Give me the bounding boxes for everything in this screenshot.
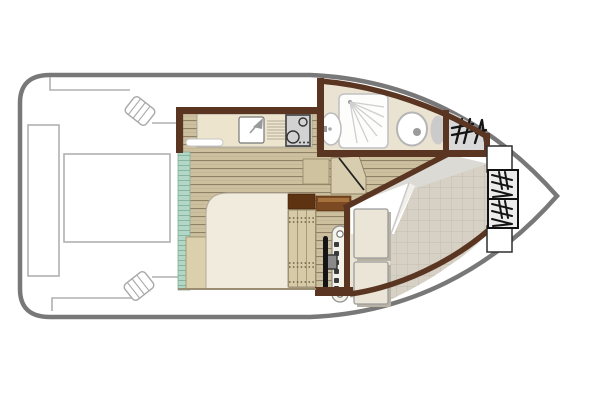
boat-floorplan — [0, 0, 600, 400]
step-chest — [303, 159, 329, 184]
toilet — [397, 113, 446, 146]
side-bench-outline — [28, 125, 59, 276]
galley — [186, 114, 312, 147]
wall-top — [176, 107, 321, 114]
wall-bulkhead-vertical — [344, 205, 350, 296]
wall-cabin-bottom — [315, 287, 353, 296]
wall-bathroom-left — [317, 78, 324, 152]
bow-shelf-outline — [487, 146, 512, 172]
shelf — [186, 139, 223, 146]
wall-bathroom-bottom — [317, 150, 490, 157]
shower-tray — [339, 94, 388, 148]
sun-pad-outline — [64, 154, 170, 242]
wheel-hub — [327, 255, 337, 269]
bow-shelf-outline — [487, 226, 512, 252]
companionway-door — [331, 156, 366, 194]
gauge-icon — [337, 231, 343, 237]
cabinet-highlight — [318, 198, 349, 202]
wall-left — [176, 107, 183, 153]
drainboard — [267, 121, 286, 139]
floorplan-canvas — [0, 0, 600, 400]
bed-duvet — [206, 193, 289, 289]
wall-store-divider — [443, 110, 449, 152]
stove — [286, 115, 310, 146]
seat-cushion — [354, 209, 391, 261]
tread-strip — [288, 210, 316, 287]
cabinet-dark — [288, 194, 315, 209]
